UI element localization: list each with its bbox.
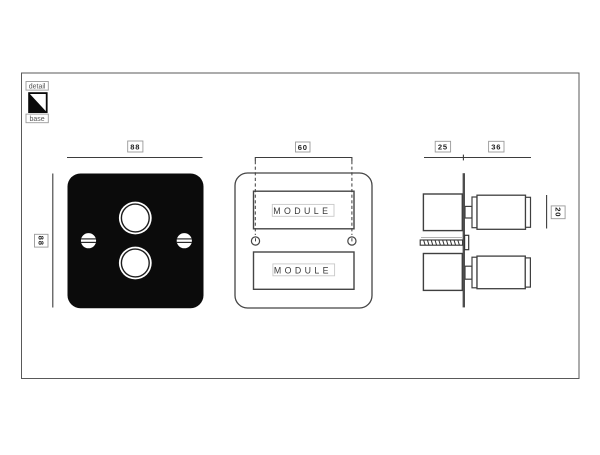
svg-text:88: 88 — [37, 236, 46, 246]
svg-text:60: 60 — [298, 143, 308, 152]
svg-text:MODULE: MODULE — [274, 265, 332, 275]
svg-text:base: base — [30, 116, 45, 123]
svg-text:36: 36 — [491, 143, 501, 152]
svg-text:88: 88 — [130, 143, 140, 152]
svg-text:MODULE: MODULE — [273, 206, 331, 216]
svg-text:25: 25 — [438, 143, 448, 152]
svg-text:detail: detail — [29, 83, 46, 90]
svg-text:20: 20 — [554, 207, 563, 217]
